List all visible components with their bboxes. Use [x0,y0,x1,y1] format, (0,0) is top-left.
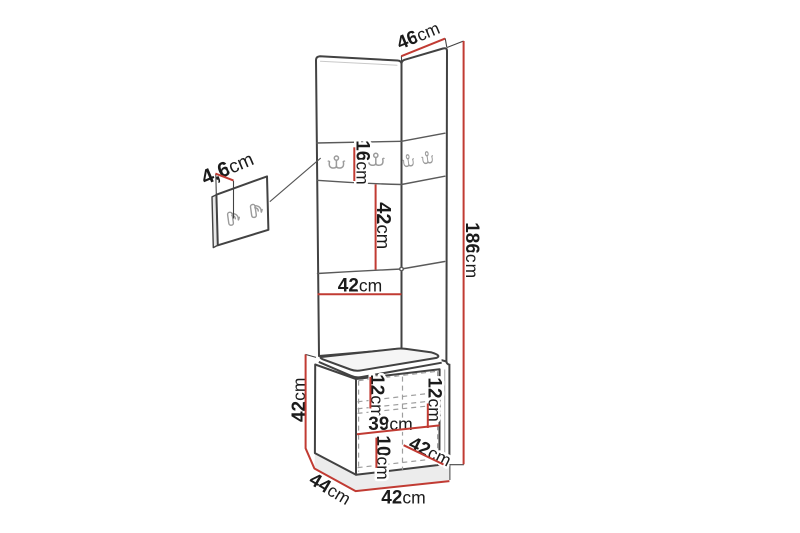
svg-text:42cm: 42cm [381,488,425,509]
svg-text:12cm: 12cm [423,377,444,421]
svg-text:12cm: 12cm [366,374,387,418]
svg-text:10cm: 10cm [372,435,393,479]
svg-text:42cm: 42cm [289,378,310,422]
